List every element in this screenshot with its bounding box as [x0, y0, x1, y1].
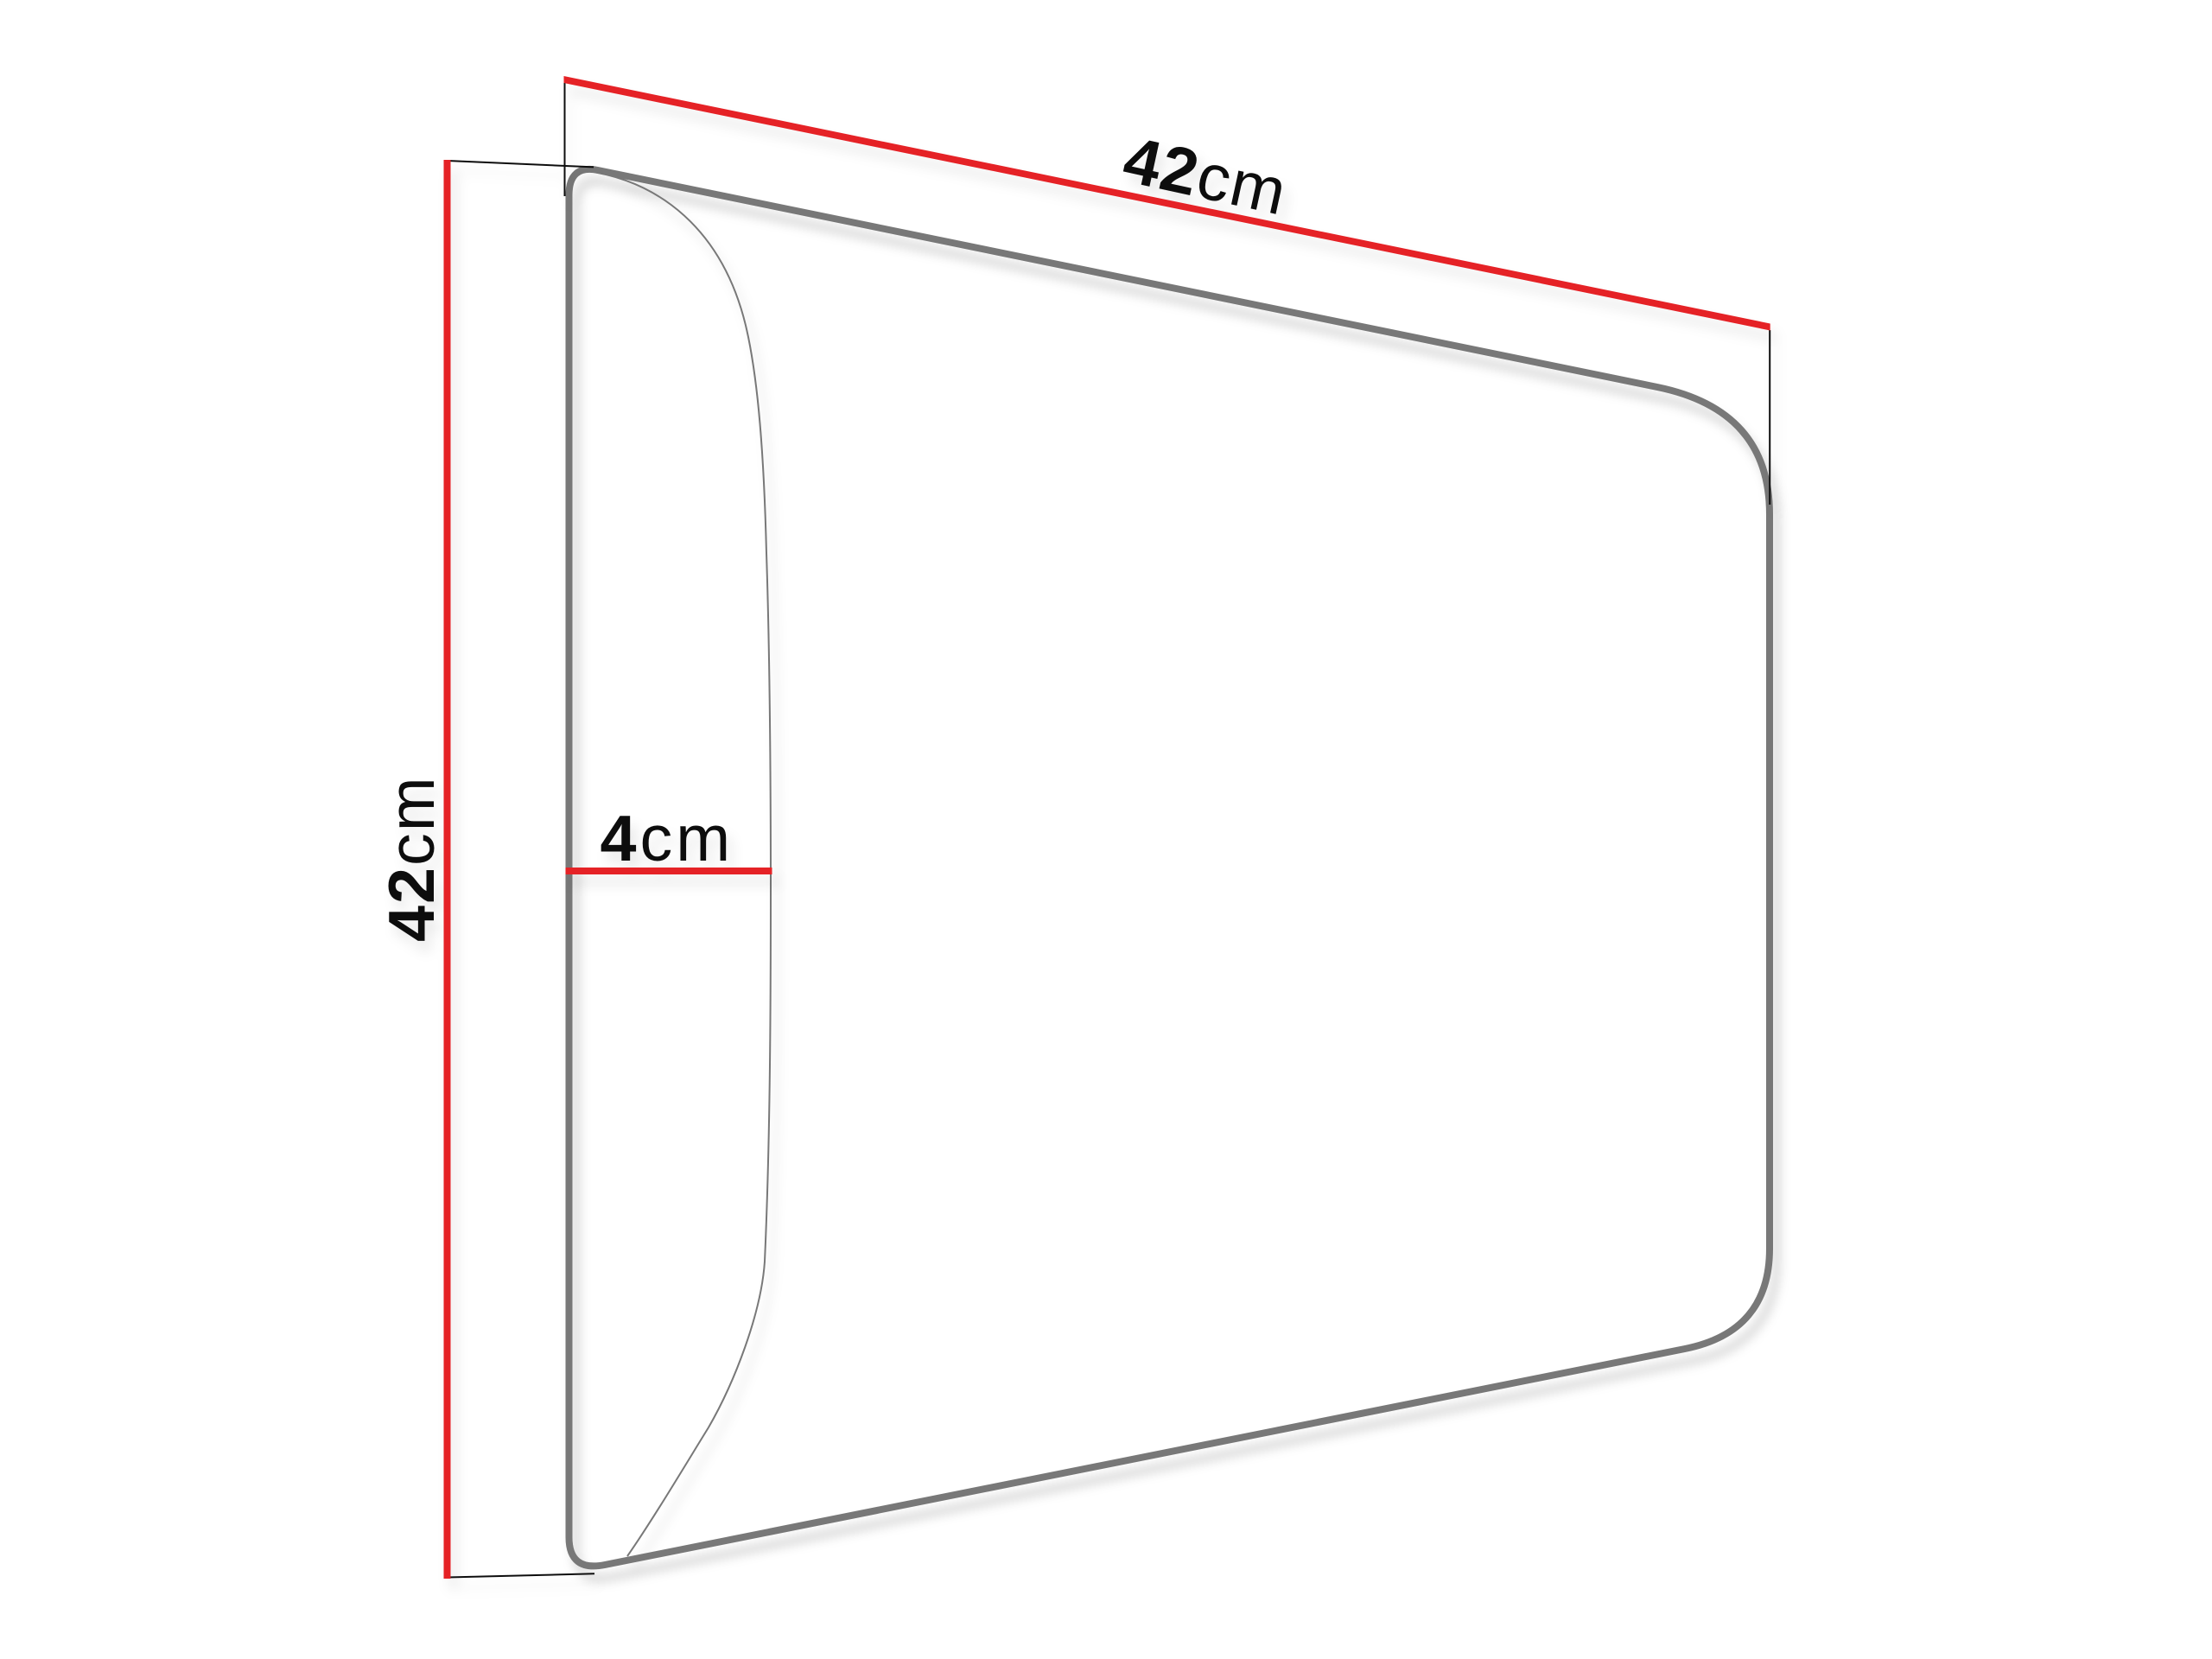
- svg-text:4cm: 4cm: [601, 802, 734, 874]
- svg-text:42cm: 42cm: [375, 775, 448, 942]
